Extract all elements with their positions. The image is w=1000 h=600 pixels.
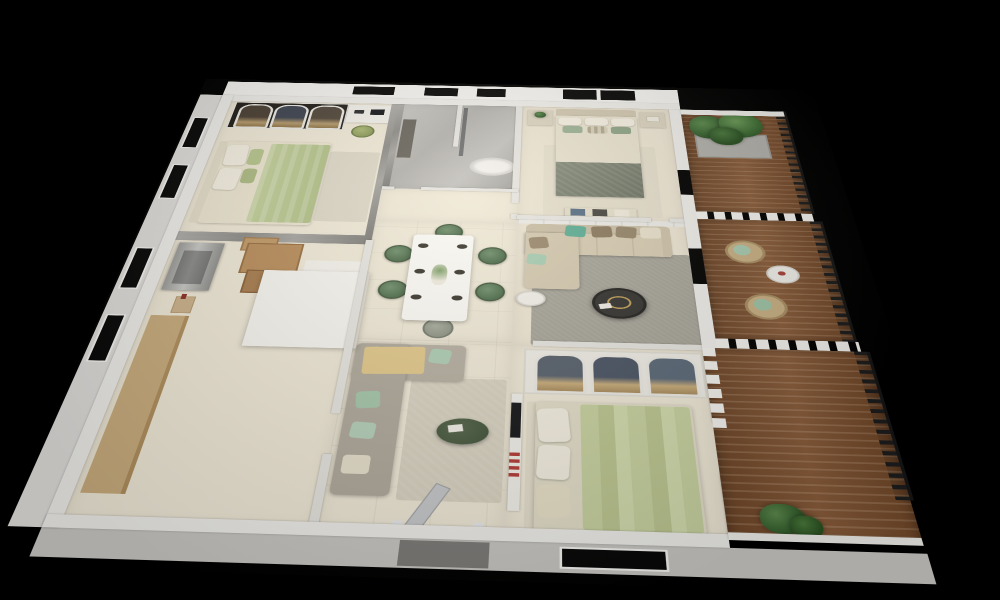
dining-table: [401, 234, 474, 321]
tray-item: [777, 271, 786, 275]
pillow: [536, 444, 571, 480]
tv-panel: [510, 403, 521, 438]
throw-blanket-dark: [556, 162, 644, 198]
book: [448, 424, 464, 433]
cream-pillow: [640, 227, 662, 238]
pillow: [611, 118, 635, 126]
shopping-bag: [170, 296, 196, 313]
railing: [854, 351, 914, 500]
railing: [809, 221, 857, 342]
desk-chair: [350, 125, 376, 138]
place-setting: [454, 270, 465, 275]
nightstand: [528, 110, 553, 126]
mint-pillow: [348, 421, 377, 439]
pillow: [536, 408, 571, 442]
place-setting: [457, 244, 468, 249]
nightstand: [639, 112, 666, 128]
wardrobe-arch-door: [534, 353, 587, 394]
bench-cushion-dark: [592, 209, 607, 216]
wardrobe-arch-door: [590, 355, 644, 396]
pillow: [585, 118, 609, 126]
place-setting: [414, 269, 425, 274]
window: [475, 88, 508, 98]
striped-pillow: [587, 126, 607, 133]
mint-pillow: [526, 253, 547, 265]
wall: [669, 218, 684, 223]
bed-3: [524, 401, 708, 535]
wardrobe-arch-door: [269, 105, 311, 129]
mint-cushion: [732, 245, 751, 256]
bathtub: [469, 157, 516, 176]
railing: [774, 111, 814, 214]
render-stage: [0, 0, 1000, 600]
wardrobe: [226, 102, 350, 130]
appliance-door: [171, 250, 212, 284]
bottle: [180, 294, 187, 299]
brown-pillow: [615, 226, 636, 238]
books: [646, 116, 660, 121]
side-table: [515, 291, 545, 307]
place-setting: [451, 295, 463, 300]
wardrobe-arch-door: [305, 105, 346, 129]
desk-items: [354, 110, 365, 114]
balcony-3: [702, 348, 924, 546]
wall: [382, 186, 395, 189]
rattan-chair: [742, 294, 790, 321]
room-bedroom-3: [504, 346, 729, 540]
bench-cushion-blue: [570, 209, 585, 216]
rattan-chair: [723, 240, 768, 264]
window: [560, 547, 670, 572]
teal-pillow: [564, 225, 586, 238]
balcony-parapet: [728, 532, 924, 546]
throw-blanket: [361, 347, 425, 374]
mint-pillow: [427, 348, 452, 364]
room-corridor: [375, 188, 518, 223]
room-living: [512, 218, 703, 350]
place-setting: [410, 294, 422, 299]
balcony-1: [680, 110, 812, 214]
entry-opening: [397, 540, 490, 569]
sage-bedding: [580, 404, 704, 533]
pillow: [558, 117, 581, 125]
wardrobe-arch-door: [645, 356, 701, 397]
bench-cushion-white: [614, 210, 629, 217]
mint-pillow: [356, 391, 381, 409]
paper: [598, 303, 612, 309]
balcony-table: [764, 265, 802, 284]
room-bathroom: [382, 104, 522, 191]
dining-chair: [474, 282, 505, 301]
balcony-2: [697, 219, 854, 342]
cream-pillow: [340, 455, 371, 475]
window: [422, 87, 460, 97]
place-setting: [418, 243, 429, 248]
apartment-floorplan: [38, 95, 928, 564]
dining-chair: [477, 247, 507, 265]
green-pillow: [611, 127, 632, 134]
master-bed: [556, 109, 645, 208]
window-mullion: [596, 89, 601, 100]
green-pillow: [562, 126, 582, 133]
room-dining: [352, 220, 517, 343]
flag-art: [508, 452, 520, 480]
flower-centerpiece: [430, 264, 448, 285]
mint-cushion: [753, 299, 774, 311]
laptop: [370, 109, 385, 115]
brown-pillow: [528, 237, 549, 249]
window: [350, 86, 396, 96]
wardrobe-3: [523, 349, 708, 399]
vase-plant: [534, 112, 546, 118]
room-master-bedroom: [517, 106, 684, 221]
cream-pillow: [536, 485, 571, 518]
brown-pillow: [591, 226, 613, 237]
sofa-arm: [660, 227, 673, 258]
